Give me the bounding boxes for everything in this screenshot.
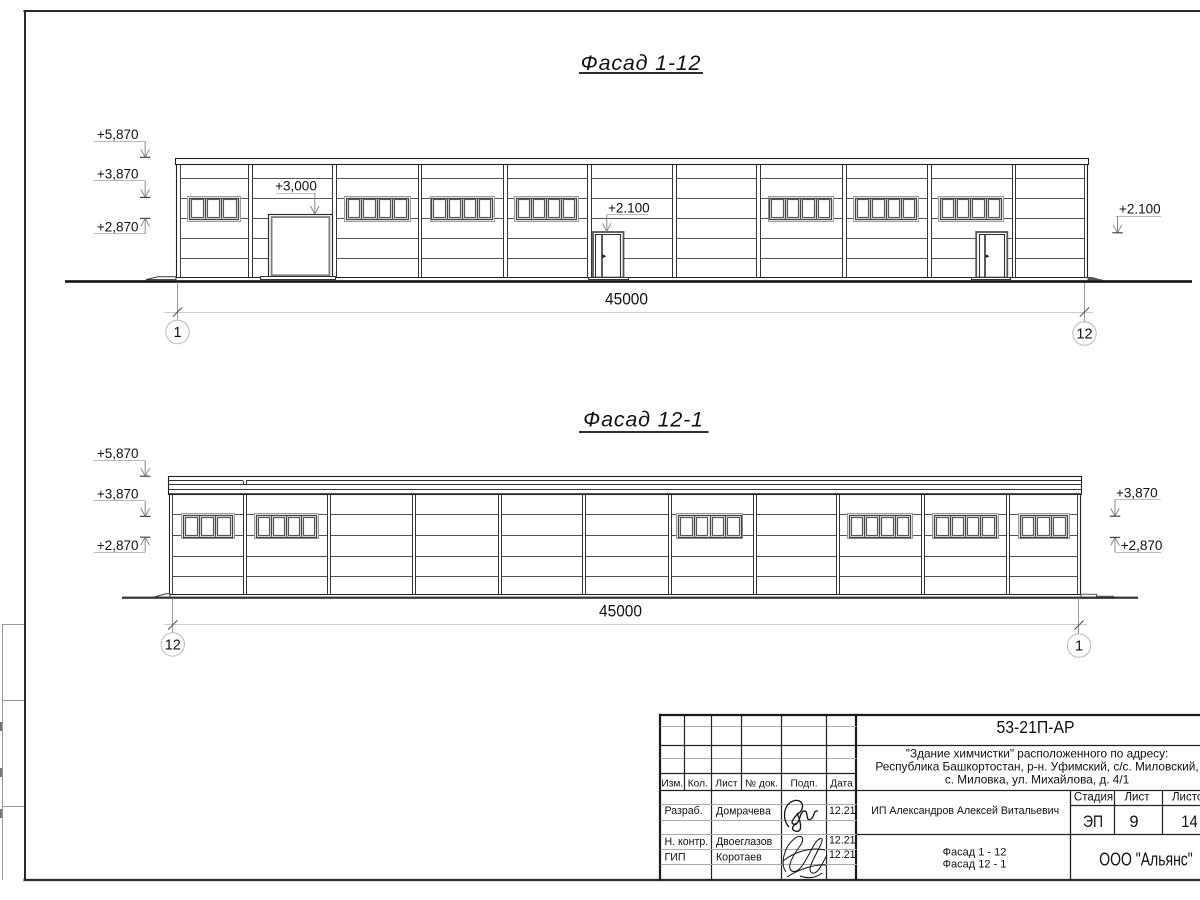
svg-text:+2,870: +2,870: [97, 538, 139, 553]
svg-text:+2.100: +2.100: [608, 200, 650, 215]
svg-text:с. Миловка, ул. Михайлова, д.: с. Миловка, ул. Михайлова, д. 4/1: [945, 773, 1129, 787]
svg-text:Домрачева: Домрачева: [716, 806, 771, 818]
svg-text:+2.100: +2.100: [1119, 202, 1161, 217]
svg-text:+3,870: +3,870: [97, 487, 139, 502]
svg-text:+5,870: +5,870: [97, 446, 139, 461]
svg-text:Фасад 1-12: Фасад 1-12: [581, 51, 702, 75]
svg-text:ИП Александров Алексей Виталье: ИП Александров Алексей Витальевич: [871, 805, 1059, 817]
svg-text:Фасад 1 - 12: Фасад 1 - 12: [943, 847, 1007, 859]
svg-text:12.21: 12.21: [829, 849, 856, 861]
svg-text:45000: 45000: [605, 290, 648, 309]
svg-text:Дата: Дата: [830, 778, 853, 789]
svg-text:Республика Башкортостан, р-н.: Республика Башкортостан, р-н. Уфимский, …: [875, 760, 1198, 774]
svg-text:Н. контр.: Н. контр.: [665, 836, 709, 848]
svg-text:ООО "Альянс": ООО "Альянс": [1099, 848, 1193, 869]
svg-text:14: 14: [1181, 813, 1198, 831]
svg-text:Листов: Листов: [1172, 792, 1200, 804]
svg-text:+5,870: +5,870: [97, 127, 139, 142]
svg-text:Изм.: Изм.: [661, 778, 683, 789]
svg-text:53-21П-АР: 53-21П-АР: [997, 717, 1075, 737]
svg-text:Кол.: Кол.: [688, 778, 708, 789]
svg-text:12.21: 12.21: [829, 805, 856, 817]
svg-text:12.21: 12.21: [829, 835, 856, 847]
svg-text:12: 12: [1076, 327, 1092, 343]
svg-text:Фасад 12 - 1: Фасад 12 - 1: [943, 858, 1007, 870]
svg-text:Фасад 12-1: Фасад 12-1: [583, 408, 704, 432]
svg-text:9: 9: [1129, 813, 1138, 831]
svg-text:+2,870: +2,870: [97, 220, 139, 235]
svg-text:Двоеглазов: Двоеглазов: [716, 836, 773, 848]
svg-text:Стадия: Стадия: [1074, 792, 1113, 804]
svg-text:ГИП: ГИП: [665, 851, 686, 863]
svg-text:ЭП: ЭП: [1083, 813, 1103, 831]
svg-text:+3,870: +3,870: [97, 166, 139, 181]
svg-text:"Здание химчистки" расположенн: "Здание химчистки" расположенного по адр…: [906, 746, 1169, 760]
svg-text:+3,000: +3,000: [275, 179, 317, 194]
svg-text:+3,870: +3,870: [1116, 485, 1158, 500]
svg-text:45000: 45000: [599, 602, 642, 621]
svg-text:Коротаев: Коротаев: [716, 851, 762, 863]
svg-text:Подп.: Подп.: [790, 778, 817, 789]
svg-text:Лист: Лист: [1125, 792, 1151, 804]
svg-text:1: 1: [1075, 639, 1083, 655]
svg-text:Лист: Лист: [715, 778, 737, 789]
svg-text:№ док.: № док.: [745, 778, 778, 789]
svg-text:12: 12: [165, 637, 181, 653]
svg-text:+2,870: +2,870: [1121, 538, 1163, 553]
svg-text:Разраб.: Разраб.: [665, 805, 703, 817]
svg-text:1: 1: [173, 325, 181, 341]
